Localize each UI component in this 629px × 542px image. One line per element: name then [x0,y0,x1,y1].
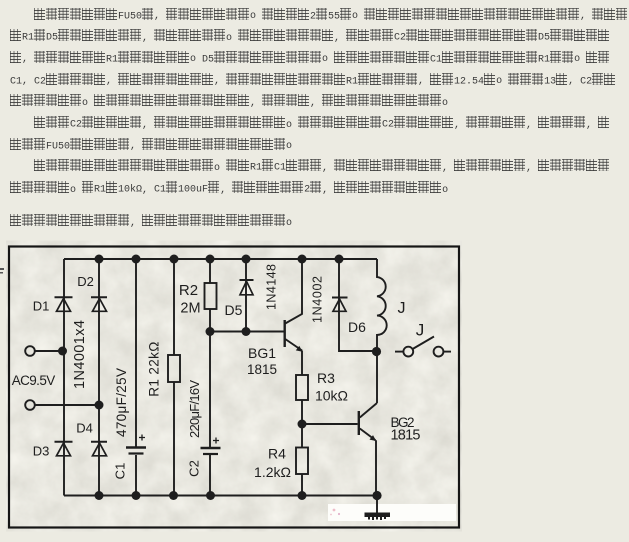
svg-text:J: J [398,300,406,317]
svg-text:1N4148: 1N4148 [265,264,279,310]
svg-text:R2: R2 [179,282,198,299]
svg-text:D2: D2 [77,274,94,289]
svg-text:1N4001x4: 1N4001x4 [72,320,88,389]
svg-text:C1: C1 [113,463,128,480]
svg-text:470μF/25V: 470μF/25V [114,368,129,437]
svg-text:220μF/16V: 220μF/16V [187,380,202,438]
svg-text:AC9.5V: AC9.5V [12,373,56,388]
svg-text:1N4002: 1N4002 [311,276,325,323]
svg-text:D4: D4 [76,421,93,436]
svg-text:1815: 1815 [247,362,277,377]
svg-text:D5: D5 [225,302,243,318]
svg-text:1.2kΩ: 1.2kΩ [254,464,291,480]
svg-text:R3: R3 [317,370,335,386]
svg-text:BG1: BG1 [248,345,276,361]
svg-text:2M: 2M [180,301,200,317]
svg-text:D6: D6 [348,319,366,335]
svg-text:D3: D3 [33,444,50,459]
svg-text:D1: D1 [33,299,50,314]
svg-text:1815: 1815 [391,428,421,444]
svg-text:R4: R4 [268,446,286,462]
svg-text:C2: C2 [187,460,202,477]
svg-text:J: J [416,321,425,340]
svg-text:R1 22kΩ: R1 22kΩ [147,342,162,397]
svg-text:10kΩ: 10kΩ [315,388,348,404]
